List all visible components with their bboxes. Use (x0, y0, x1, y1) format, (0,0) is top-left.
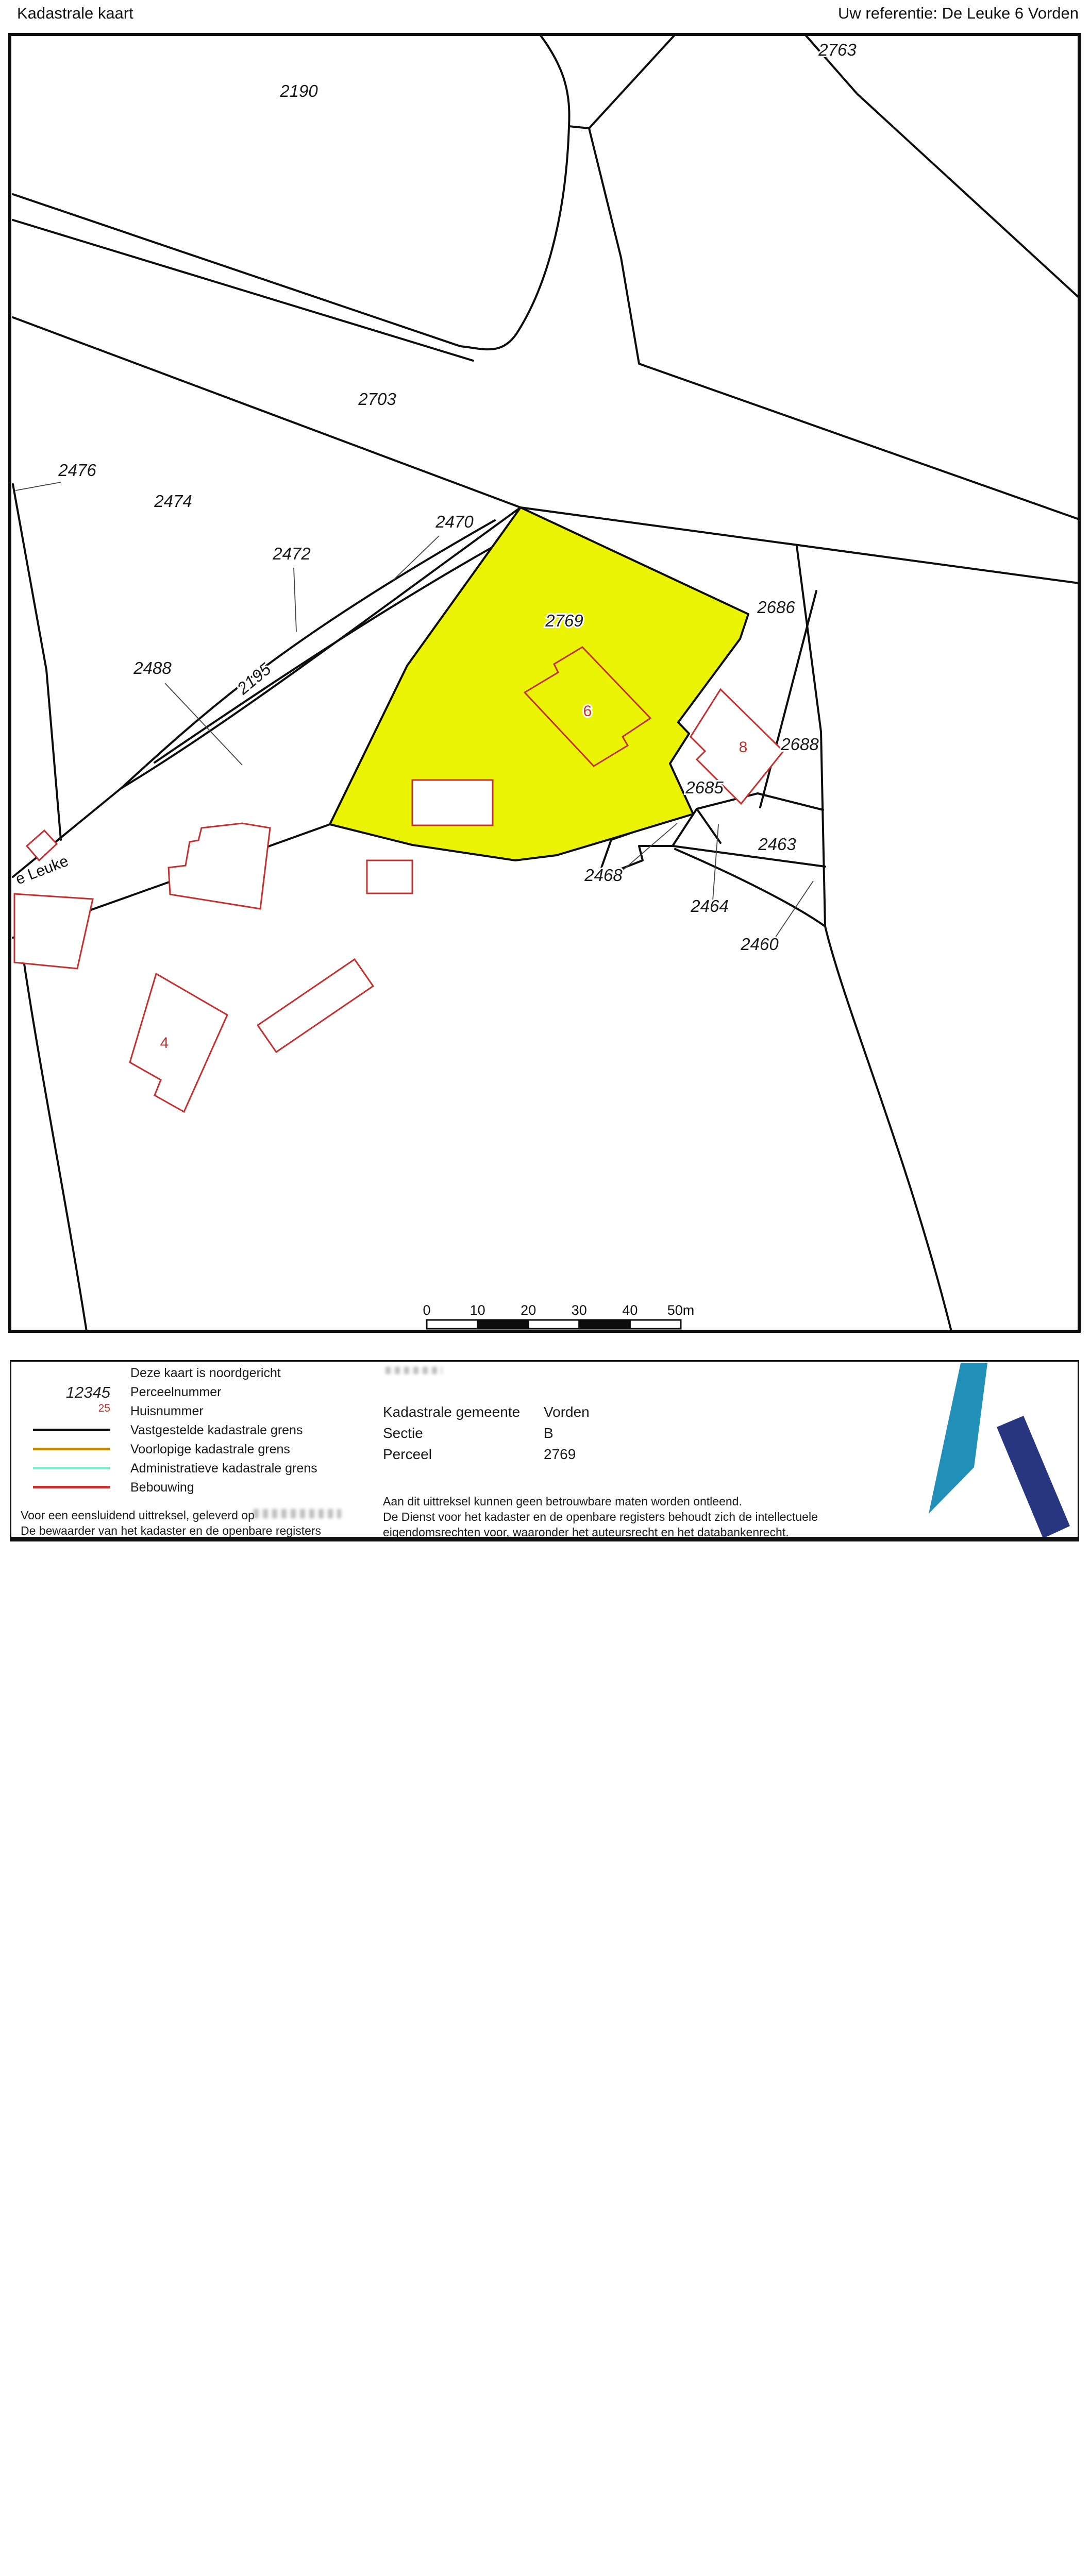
detail-label: Sectie (383, 1425, 423, 1442)
scale-label-30: 30 (572, 1302, 587, 1318)
house-number-4: 4 (160, 1035, 169, 1052)
footer-panel: Deze kaart is noordgericht 12345Perceeln… (10, 1360, 1079, 1541)
detail-value: Vorden (544, 1404, 590, 1420)
scale-label-20: 20 (521, 1302, 536, 1318)
parcel-label-2190: 2190 (279, 81, 318, 100)
scale-segment (478, 1320, 529, 1329)
north-note: Deze kaart is noordgericht (130, 1366, 281, 1381)
detail-value: 2769 (544, 1446, 576, 1463)
building-outline (367, 860, 412, 893)
parcel-label-2463: 2463 (758, 835, 796, 854)
parcel-label-2686: 2686 (757, 598, 795, 617)
parcel-label-2476: 2476 (58, 461, 96, 480)
scale-segment (630, 1320, 681, 1329)
scale-segment (528, 1320, 579, 1329)
legend-item: Bebouwing (32, 1479, 393, 1498)
scale-label-0: 0 (423, 1302, 430, 1318)
parcel-label-2488: 2488 (133, 658, 172, 677)
legend-item: Voorlopige kadastrale grens (32, 1440, 393, 1460)
scale-segment (427, 1320, 478, 1329)
parcel-label-2470: 2470 (435, 512, 474, 531)
detail-label: Kadastrale gemeente (383, 1404, 520, 1420)
legend-label: Perceelnummer (130, 1385, 221, 1400)
scale-label-10: 10 (470, 1302, 485, 1318)
legend-item: Vastgestelde kadastrale grens (32, 1421, 393, 1440)
house-number-8: 8 (739, 739, 748, 756)
legend-item: 25Huisnummer (32, 1402, 393, 1421)
parcel-label-2472: 2472 (272, 544, 310, 563)
building-outline (412, 780, 493, 825)
disclaimer-line: Aan dit uittreksel kunnen geen betrouwba… (383, 1495, 742, 1509)
scale-label-50m: 50m (667, 1302, 695, 1318)
cadastral-map: 2190276327032476247424702472248821952769… (0, 0, 1090, 1546)
legend-label: Huisnummer (130, 1404, 204, 1419)
legend-label: Administratieve kadastrale grens (130, 1461, 317, 1476)
parcel-label-2460: 2460 (740, 935, 779, 954)
parcel-label-2464: 2464 (690, 896, 728, 916)
legend-line-swatch (33, 1429, 110, 1431)
legend-symbol: 25 (98, 1402, 110, 1414)
legend-label: Vastgestelde kadastrale grens (130, 1423, 303, 1438)
parcel-label-2474: 2474 (154, 492, 192, 511)
redacted-scale-note (385, 1367, 442, 1374)
scale-label-40: 40 (622, 1302, 638, 1318)
cadastral-extract-page: { "header": { "title": "Kadastrale kaart… (0, 0, 1090, 1546)
parcel-label-2769: 2769 (545, 611, 583, 630)
parcel-label-2763: 2763 (818, 40, 857, 59)
detail-label: Perceel (383, 1446, 432, 1463)
legend-item: Administratieve kadastrale grens (32, 1460, 393, 1479)
parcel-label-2703: 2703 (358, 389, 396, 409)
legend-line-swatch (33, 1467, 110, 1469)
house-number-6: 6 (583, 703, 592, 720)
registrar-note: De bewaarder van het kadaster en de open… (21, 1524, 321, 1538)
legend-label: Bebouwing (130, 1480, 194, 1495)
legend-label: Voorlopige kadastrale grens (130, 1442, 290, 1457)
detail-value: B (544, 1425, 554, 1442)
legend-symbol: 12345 (66, 1383, 110, 1401)
redacted-date (254, 1509, 341, 1518)
legend-line-swatch (33, 1448, 110, 1450)
disclaimer-line: eigendomsrechten voor, waaronder het aut… (383, 1526, 789, 1539)
parcel-label-2688: 2688 (780, 735, 819, 754)
legend-item: 12345Perceelnummer (32, 1383, 393, 1402)
parcel-label-2685: 2685 (685, 778, 724, 797)
scale-segment (579, 1320, 630, 1329)
delivery-note: Voor een eensluidend uittreksel, gelever… (21, 1509, 255, 1522)
parcel-label-2468: 2468 (584, 866, 623, 885)
legend-line-swatch (33, 1486, 110, 1488)
disclaimer-line: De Dienst voor het kadaster en de openba… (383, 1510, 818, 1524)
